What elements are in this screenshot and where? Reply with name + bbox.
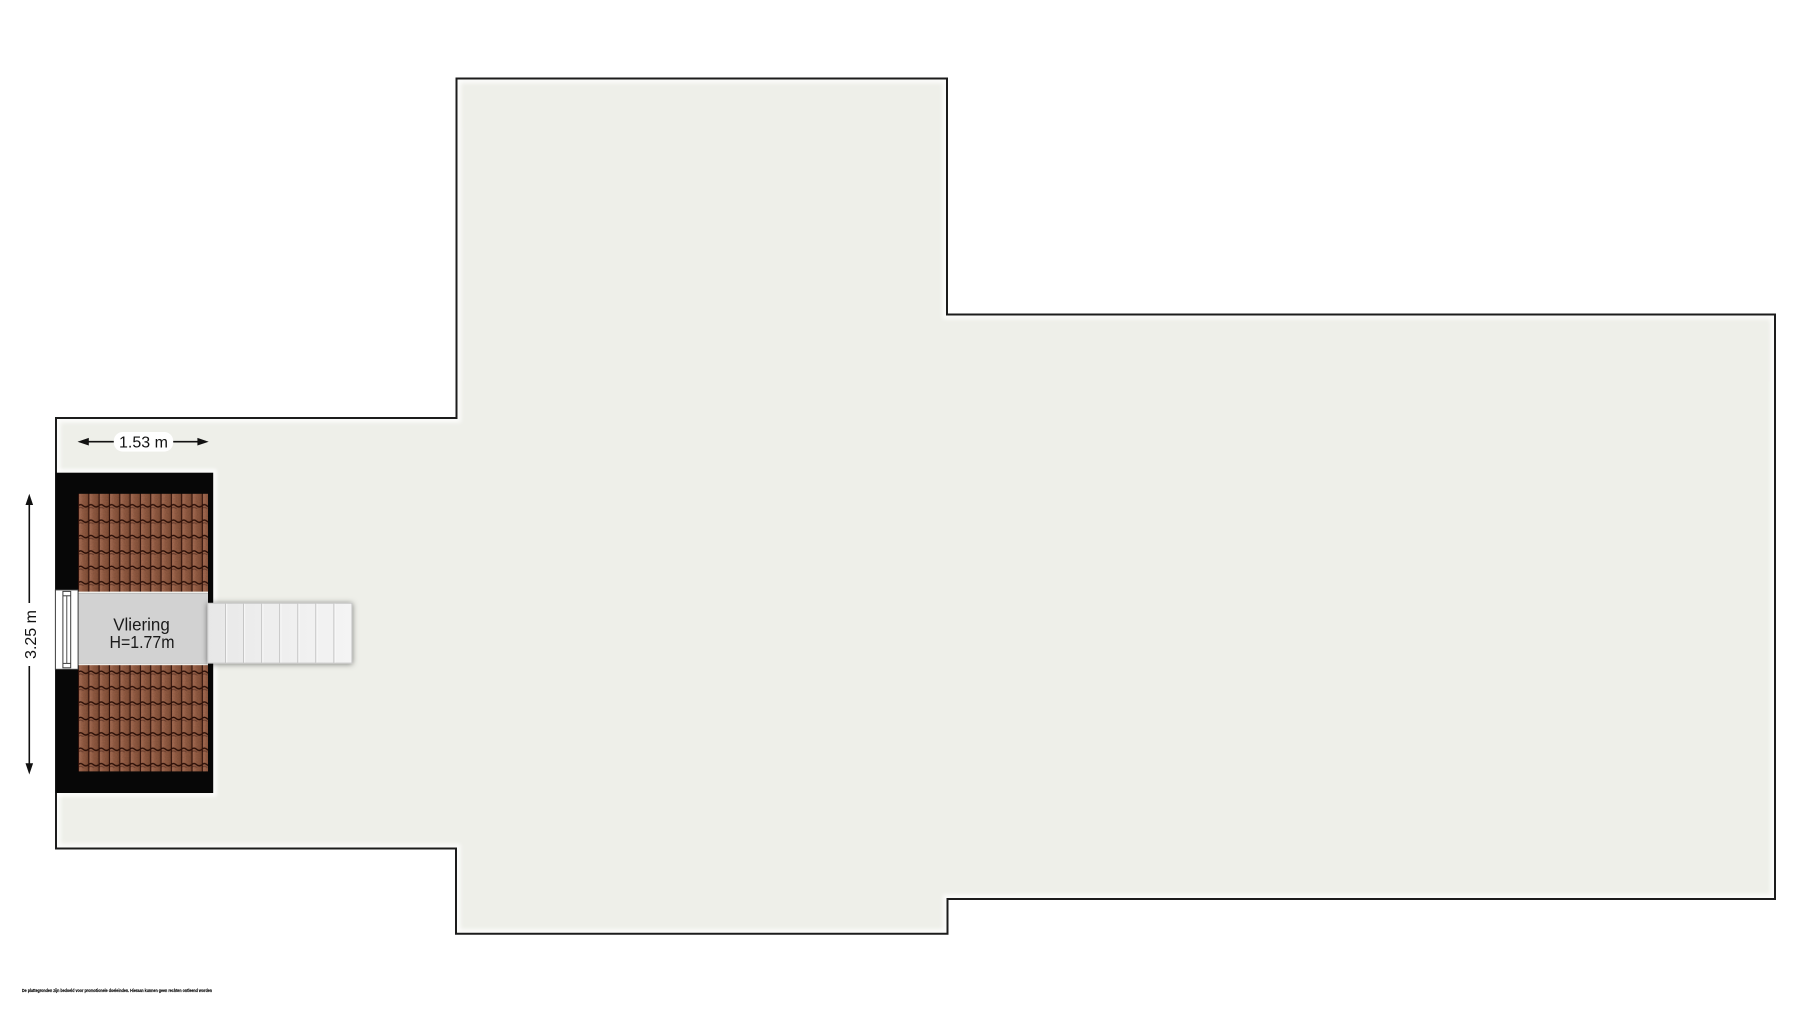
svg-text:De plattegronden zijn bedoeld: De plattegronden zijn bedoeld voor promo… bbox=[22, 988, 212, 994]
svg-text:3.25 m: 3.25 m bbox=[23, 610, 40, 659]
svg-text:H=1.77m: H=1.77m bbox=[110, 632, 175, 652]
svg-text:1.53 m: 1.53 m bbox=[119, 435, 168, 452]
